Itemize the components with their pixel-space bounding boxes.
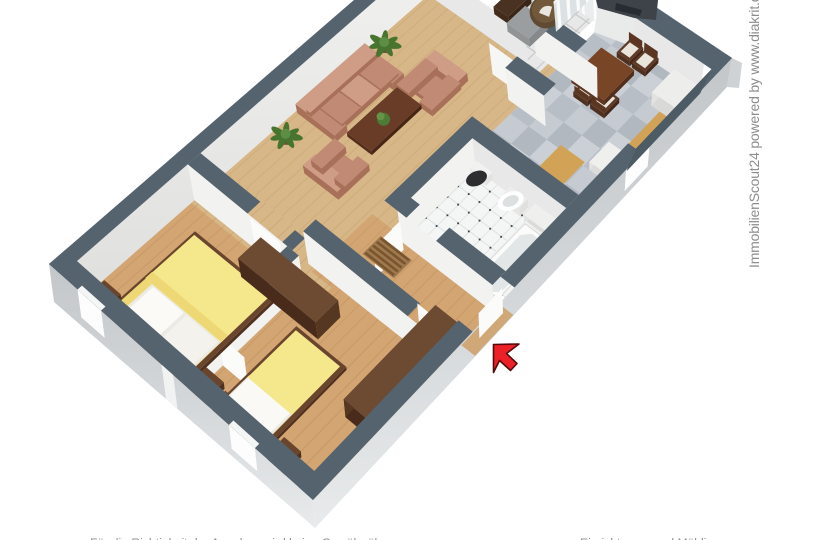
svg-text:ImmobilienScout24 powered by w: ImmobilienScout24 powered by www.diakrit… (746, 0, 762, 268)
